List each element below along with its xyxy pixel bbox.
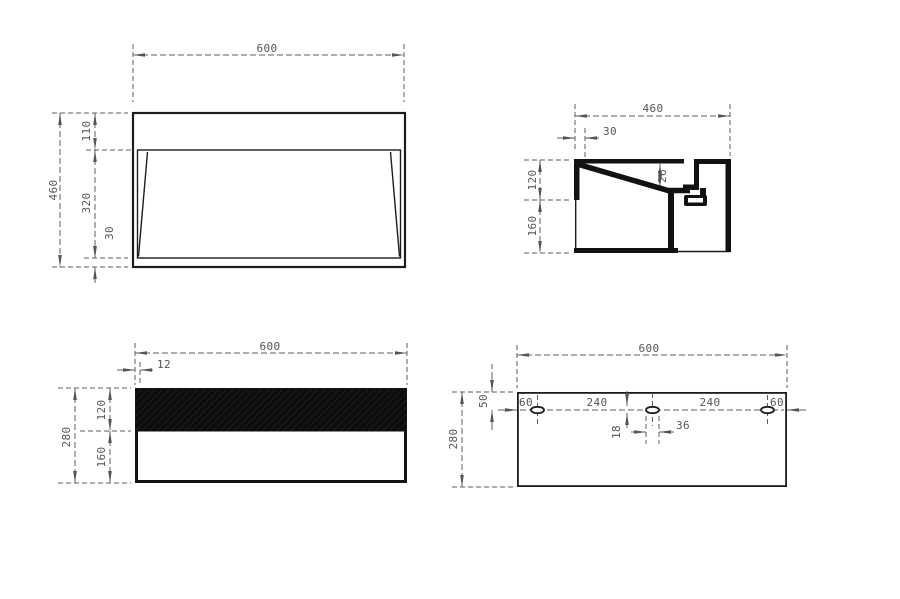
front-lower-label: 160	[95, 446, 108, 467]
section-width-label: 460	[642, 102, 663, 115]
section-overflow-step-h	[683, 185, 699, 191]
back-edge-right-label: 60	[770, 396, 784, 409]
back-offset-label: 50	[477, 394, 490, 408]
mounting-slot-middle	[646, 407, 659, 413]
front-view: 600 12 280 120 160	[40, 335, 440, 500]
section-right-wall	[726, 159, 732, 252]
plan-dimension-lines	[52, 44, 404, 283]
plan-view: 600 460 110 320 30	[40, 30, 440, 305]
back-view: 600 280 50 60 240 240 60 18 36	[445, 335, 835, 500]
section-upper-label: 120	[526, 169, 539, 190]
back-slot-width-label: 36	[676, 419, 690, 432]
plan-outline	[133, 113, 405, 267]
plan-bot-seg-label: 30	[103, 226, 116, 240]
section-deck	[574, 159, 684, 164]
front-width-label: 600	[259, 340, 280, 353]
plan-basin-rim	[138, 150, 401, 258]
section-inset-label: 30	[603, 125, 617, 138]
front-apron-hatched	[136, 389, 406, 432]
section-drain-slot	[688, 198, 703, 203]
front-lip-label: 12	[157, 358, 171, 371]
plan-outer-rect	[133, 113, 405, 267]
back-width-label: 600	[638, 342, 659, 355]
front-height-label: 280	[60, 426, 73, 447]
plan-height-label: 460	[47, 179, 60, 200]
back-span-right-label: 240	[699, 396, 720, 409]
back-slot-height-label: 18	[610, 425, 623, 439]
section-view: 460 30 120 160 26	[450, 85, 770, 270]
plan-width-label: 600	[256, 42, 277, 55]
section-lower-label: 160	[526, 215, 539, 236]
back-height-label: 280	[447, 428, 460, 449]
back-span-left-label: 240	[586, 396, 607, 409]
section-bottom-bar	[574, 248, 678, 253]
front-upper-label: 120	[95, 399, 108, 420]
plan-taper-left	[139, 152, 148, 257]
section-inner-wall	[668, 190, 674, 253]
plan-top-seg-label: 110	[80, 120, 93, 141]
front-outline	[136, 389, 406, 482]
drawing-canvas: 600 460 110 320 30	[0, 0, 900, 599]
section-back-deck	[694, 159, 731, 164]
section-sloped-bottom	[577, 164, 690, 191]
section-solid	[574, 159, 731, 253]
plan-mid-seg-label: 320	[80, 192, 93, 213]
section-drop-label: 26	[656, 169, 669, 183]
back-edge-left-label: 60	[519, 396, 533, 409]
plan-taper-right	[391, 152, 400, 257]
